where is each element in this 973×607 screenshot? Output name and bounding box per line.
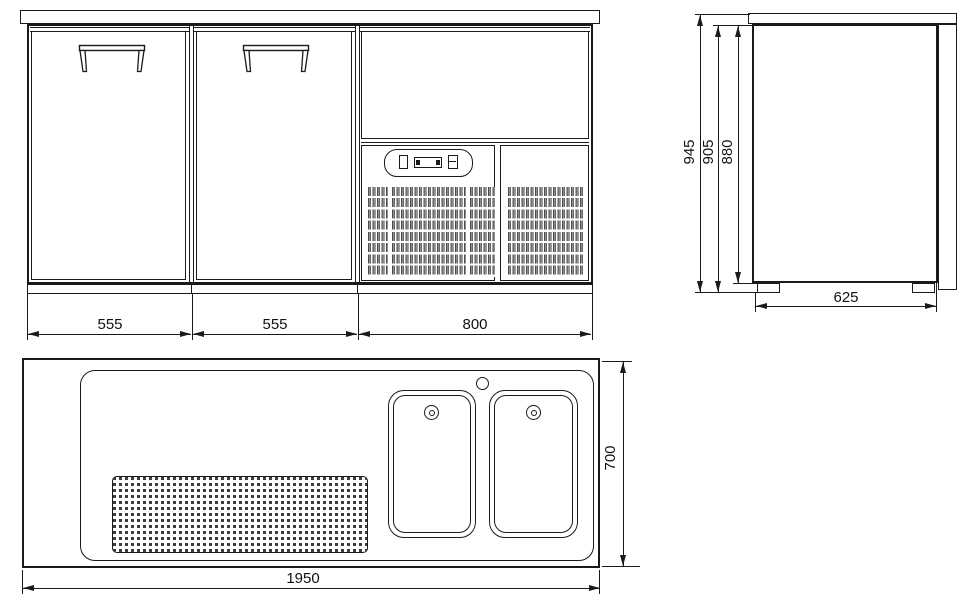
mullion-left: [189, 26, 194, 282]
countertop-side: [748, 13, 957, 24]
extension-line: [695, 292, 759, 293]
dim-line-body-height: [738, 26, 739, 283]
extension-line: [695, 14, 750, 15]
extension-line: [602, 361, 632, 362]
extension-line: [733, 283, 759, 284]
foot-rear: [912, 283, 935, 293]
drain-hole-left-inner: [429, 410, 435, 416]
dim-label-overall-width: 1950: [273, 571, 333, 587]
plinth: [27, 284, 593, 294]
vent-grille-compressor: [368, 187, 495, 277]
dim-line-overall-depth: [623, 362, 624, 566]
rear-panel: [938, 24, 957, 290]
door-handle-icon: [242, 44, 310, 74]
dim-line-door-right: [193, 334, 357, 335]
dim-label-machine-section: 800: [445, 317, 505, 333]
control-panel: [384, 149, 473, 177]
dim-line-overall-width: [23, 588, 600, 589]
machine-compartment-blank-panel: [361, 31, 589, 139]
dim-label-body-height: 880: [720, 122, 736, 182]
countertop-front: [20, 10, 600, 24]
dim-line-depth: [756, 306, 936, 307]
extension-line: [592, 294, 593, 340]
vent-grille-condenser: [508, 187, 584, 277]
dim-line-machine-section: [359, 334, 591, 335]
dim-label-overall-height: 945: [682, 122, 698, 182]
extension-line: [602, 566, 640, 567]
drain-hole-right-inner: [531, 410, 537, 416]
mullion-right: [355, 26, 360, 282]
dim-label-door-right: 555: [245, 317, 305, 333]
door-handle-icon: [78, 44, 146, 74]
light-switch-icon[interactable]: [448, 155, 458, 169]
foot-front: [757, 283, 780, 293]
dim-label-door-left: 555: [80, 317, 140, 333]
cabinet-body-side: [752, 24, 938, 283]
faucet-hole: [476, 377, 489, 390]
power-switch-icon[interactable]: [399, 155, 408, 169]
machine-compartment-divider-line: [361, 142, 589, 143]
dim-label-depth: 625: [816, 290, 876, 306]
technical-drawing: 555 555 800 945 905 880 625: [0, 0, 973, 607]
dim-label-height-under-top: 905: [701, 122, 717, 182]
thermostat-display[interactable]: [414, 157, 442, 168]
dim-line-door-left: [28, 334, 191, 335]
drip-tray-grille: [112, 476, 368, 553]
extension-line: [936, 283, 937, 312]
dim-label-overall-depth: 700: [603, 428, 619, 488]
